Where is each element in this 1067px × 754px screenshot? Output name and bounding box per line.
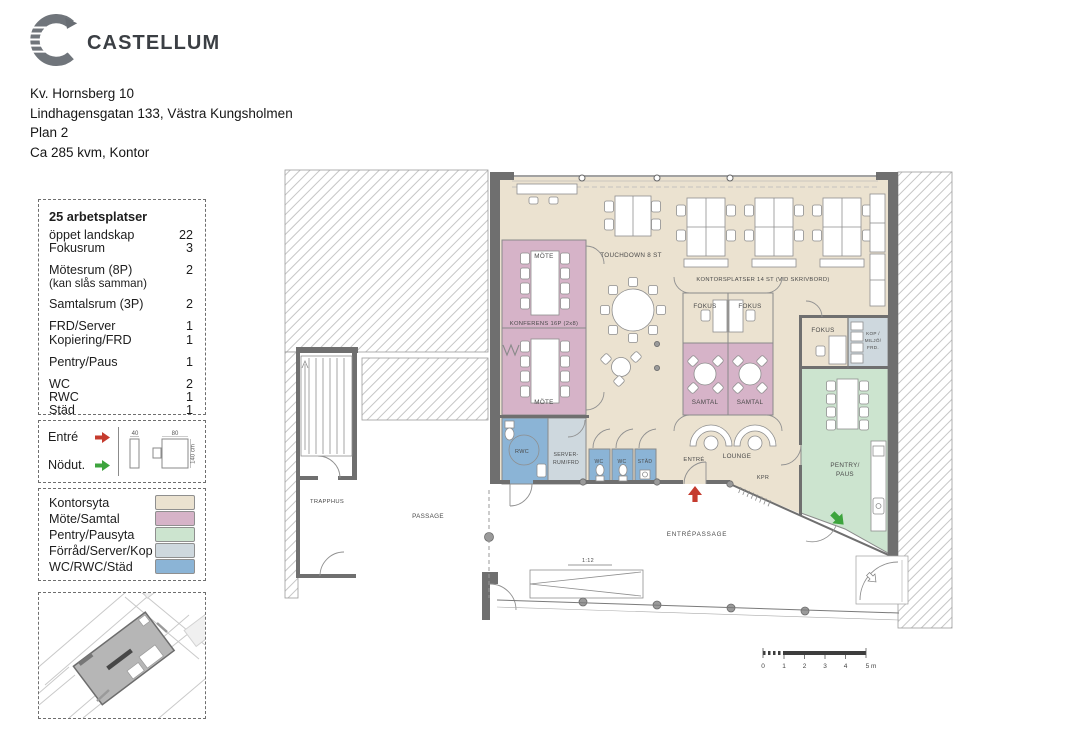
label-fokus-3: FOKUS <box>811 327 834 334</box>
legend-swatch-wc <box>155 559 195 574</box>
entre-arrow <box>688 486 702 502</box>
site-map-buildings <box>39 593 205 718</box>
nodut-legend-row: Nödut. <box>48 458 118 472</box>
small-round-table <box>612 358 631 377</box>
svg-text:2: 2 <box>803 663 807 670</box>
entre-arrow-icon <box>94 431 111 444</box>
summary-row: Pentry/Paus1 <box>49 356 195 369</box>
label-trapphus: TRAPPHUS <box>310 499 344 505</box>
floor-plan: MÖTE KONFERENS 16P (2x8) MÖTE TOUCHDOWN … <box>283 162 955 682</box>
label-server: SERVER- <box>553 452 578 458</box>
svg-text:FRD.: FRD. <box>867 345 879 350</box>
summary-row: Fokusrum3 <box>49 242 195 255</box>
scale-bar: 0 1 2 3 4 5 m <box>761 648 876 670</box>
site-map-box <box>38 592 206 719</box>
samtal-table <box>694 363 716 385</box>
address-line: Ca 285 kvm, Kontor <box>30 143 293 163</box>
touchdown-round-table <box>612 289 654 331</box>
summary-title: 25 arbetsplatser <box>49 209 195 224</box>
label-wc-1: WC <box>595 459 604 465</box>
label-pentry: PENTRY/ <box>830 462 859 469</box>
mote-2-table <box>531 339 559 403</box>
svg-text:80: 80 <box>172 431 179 437</box>
castellum-logo <box>28 14 80 71</box>
address-line: Plan 2 <box>30 123 293 143</box>
entre-legend-row: Entré <box>48 430 118 444</box>
sideboard <box>517 184 577 194</box>
svg-text:PAUS: PAUS <box>836 471 854 478</box>
nodut-arrow-icon <box>94 459 111 472</box>
svg-text:140 cm: 140 cm <box>191 444 197 464</box>
summary-row: FRD/Server1 <box>49 320 195 333</box>
svg-text:3: 3 <box>823 663 827 670</box>
legend-swatch-kontorsyta <box>155 495 195 510</box>
ramp <box>530 570 643 598</box>
workspace-summary-box: 25 arbetsplatser öppet landskap22 Fokusr… <box>38 199 206 415</box>
label-fokus-2: FOKUS <box>738 303 761 310</box>
label-wc-2: WC <box>618 459 627 465</box>
summary-row: Samtalsrum (3P)2 <box>49 298 195 311</box>
svg-text:1: 1 <box>782 663 786 670</box>
samtal-table <box>739 363 761 385</box>
legend-swatch-mote <box>155 511 195 526</box>
label-passage: PASSAGE <box>412 513 444 520</box>
furniture-dims-icon: 40 80 140 cm <box>119 428 199 476</box>
label-samtal-1: SAMTAL <box>692 399 719 406</box>
legend-row: Möte/Samtal <box>49 511 195 526</box>
legend-swatch-forrad <box>155 543 195 558</box>
svg-text:0: 0 <box>761 663 765 670</box>
summary-row: Kopiering/FRD1 <box>49 334 195 347</box>
label-mote-2: MÖTE <box>534 398 553 406</box>
label-mote-1: MÖTE <box>534 252 553 260</box>
svg-text:5 m: 5 m <box>866 663 877 670</box>
label-konferens: KONFERENS 16P (2x8) <box>510 321 578 327</box>
address-line: Kv. Hornsberg 10 <box>30 84 293 104</box>
label-entrepassage: ENTRÉPASSAGE <box>667 529 728 538</box>
brand-name: CASTELLUM <box>87 32 220 55</box>
floorplan-page: { "header": { "brand": "CASTELLUM", "add… <box>0 0 1067 754</box>
svg-text:40: 40 <box>132 431 139 437</box>
site-map <box>39 593 205 718</box>
pentry-table <box>837 379 858 429</box>
legend-row: Pentry/Pausyta <box>49 527 195 542</box>
address-block: Kv. Hornsberg 10 Lindhagensgatan 133, Vä… <box>30 84 293 162</box>
rear-exit <box>856 556 908 604</box>
svg-text:RUM/FRD: RUM/FRD <box>553 460 579 466</box>
legend-row: Kontorsyta <box>49 495 195 510</box>
svg-text:MILJÖ/: MILJÖ/ <box>865 337 882 343</box>
label-touchdown: TOUCHDOWN 8 ST <box>600 252 661 259</box>
access-rows: Entré Nödut. <box>48 427 119 476</box>
room-server <box>548 418 586 484</box>
label-kop: KOP / <box>866 331 880 336</box>
address-line: Lindhagensgatan 133, Västra Kungsholmen <box>30 104 293 124</box>
color-legend-box: Kontorsyta Möte/Samtal Pentry/Pausyta Fö… <box>38 488 206 581</box>
label-rwc: RWC <box>515 449 529 455</box>
label-fokus-1: FOKUS <box>693 303 716 310</box>
access-legend-box: Entré Nödut. 40 80 140 cm <box>38 420 206 483</box>
label-stad: STÄD <box>638 458 653 465</box>
legend-row: Förråd/Server/Kop <box>49 543 195 558</box>
label-kpr: KPR <box>757 475 769 481</box>
mote-1-table <box>531 251 559 315</box>
summary-row-note: (kan slås samman) <box>49 278 195 290</box>
summary-row: Städ1 <box>49 404 195 417</box>
label-ramp: 1:12 <box>582 558 594 564</box>
summary-row: Mötesrum (8P)2 <box>49 264 195 277</box>
label-entre: ENTRÉ <box>683 456 704 463</box>
castellum-logo-icon <box>28 14 80 66</box>
label-samtal-2: SAMTAL <box>737 399 764 406</box>
legend-swatch-pentry <box>155 527 195 542</box>
label-kontorsplatser: KONTORSPLATSER 14 ST (VID SKRIVBORD) <box>696 277 829 283</box>
legend-row: WC/RWC/Städ <box>49 559 195 574</box>
label-lounge: LOUNGE <box>723 453 751 460</box>
furniture-dimension-icons: 40 80 140 cm <box>119 427 199 476</box>
svg-text:4: 4 <box>844 663 848 670</box>
